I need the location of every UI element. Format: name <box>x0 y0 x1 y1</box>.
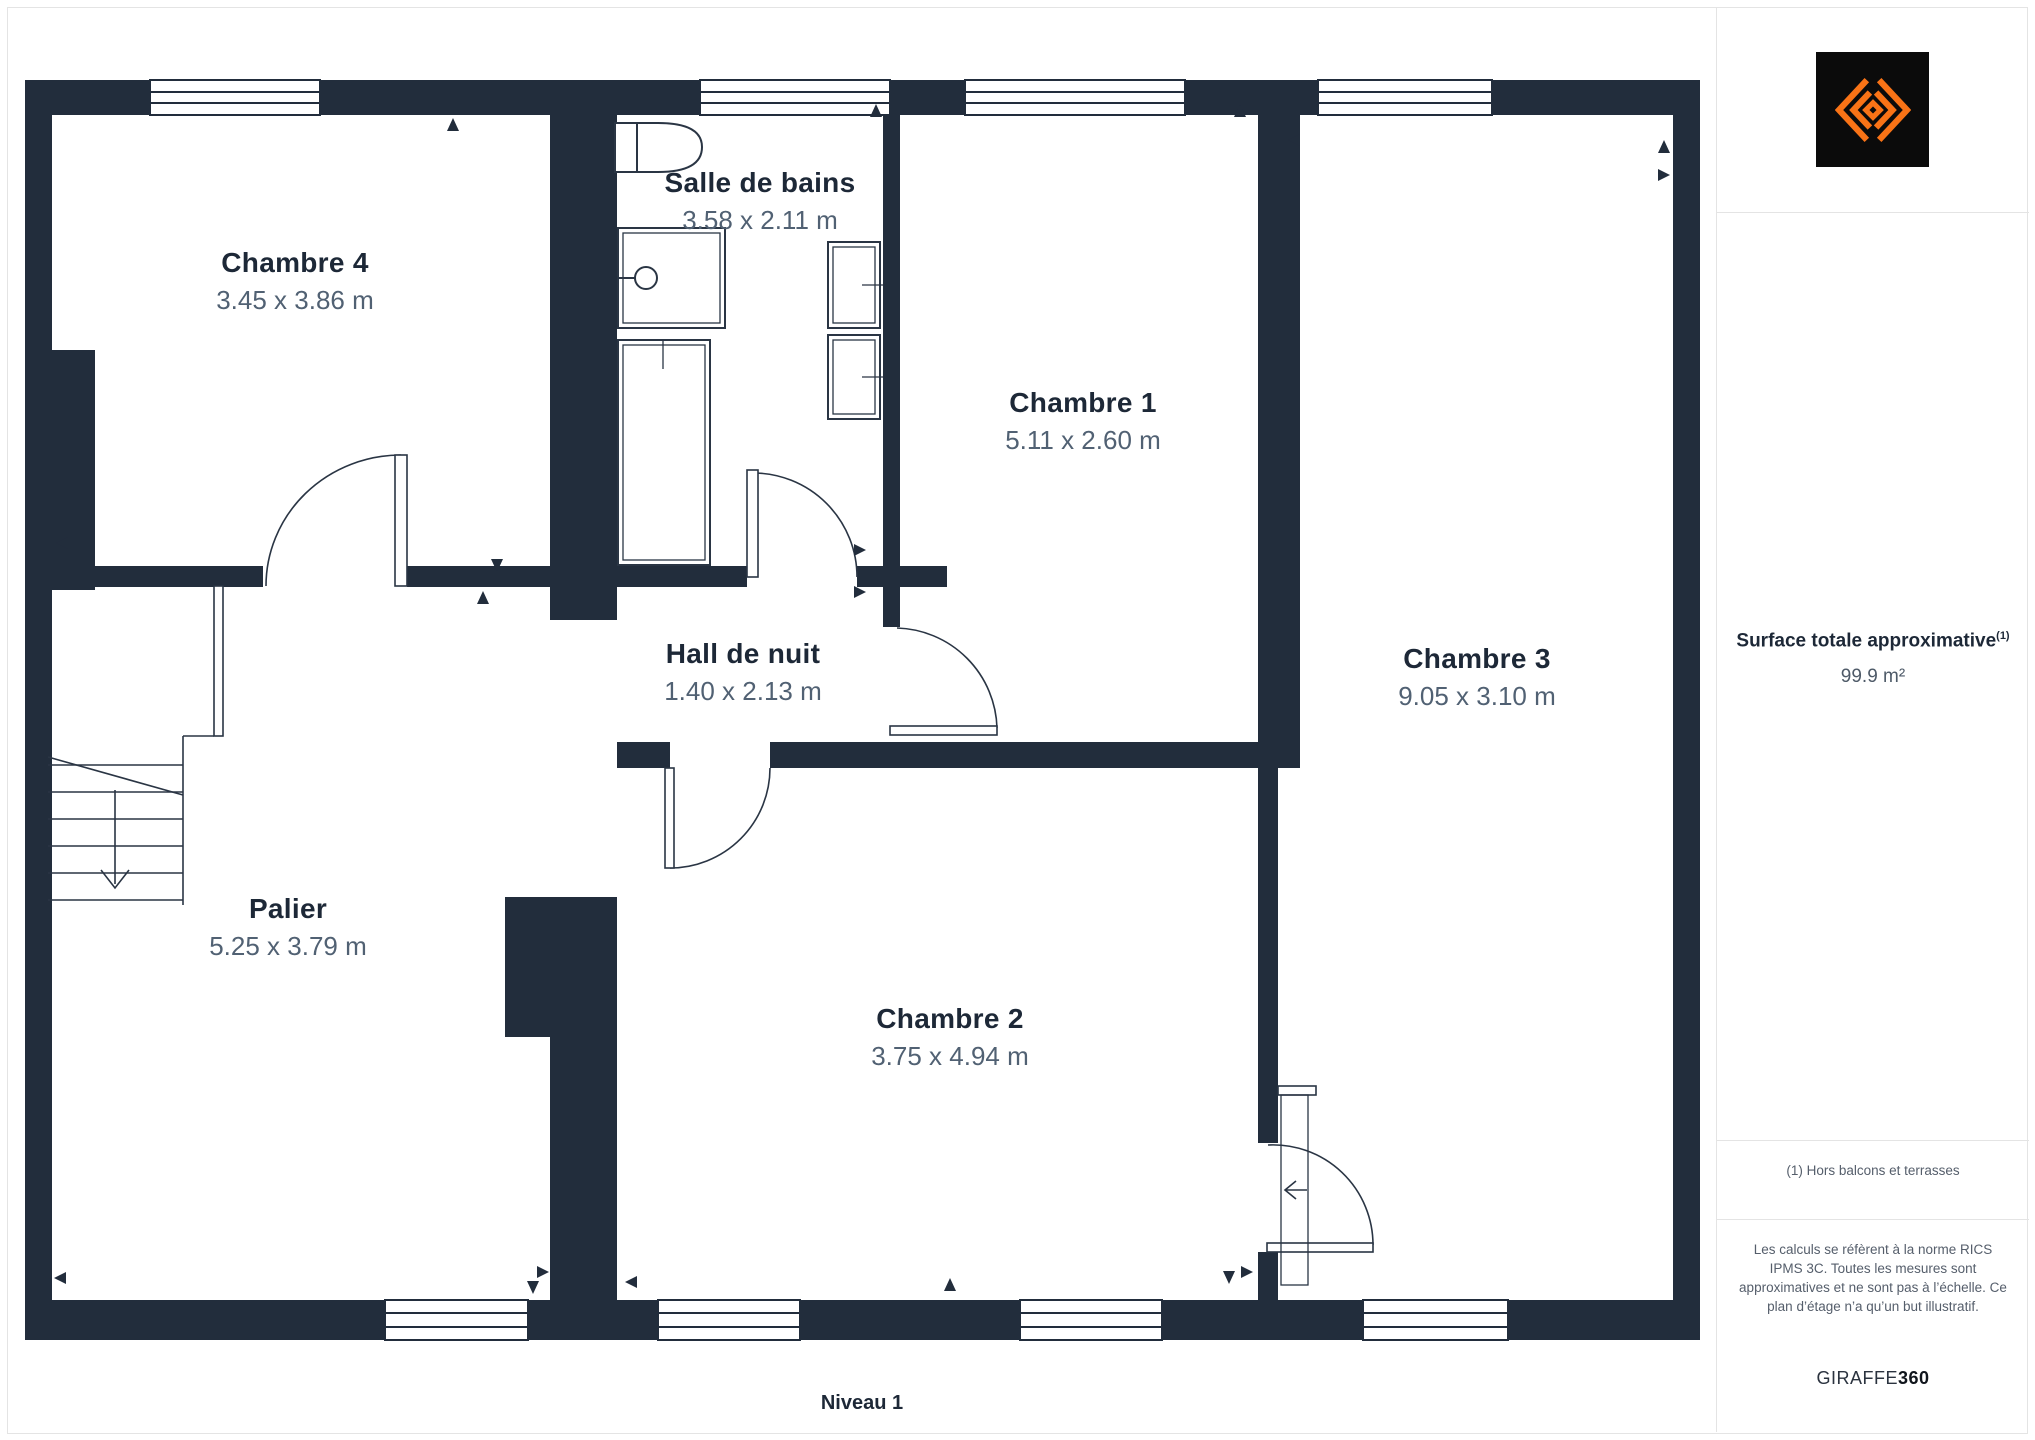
brand-logo <box>1816 52 1929 167</box>
door-chambre2 <box>665 768 770 868</box>
wall-chambre1-chambre3 <box>1258 115 1300 742</box>
door-chambre3 <box>1267 1086 1373 1285</box>
arrow-left-icon <box>54 1272 66 1284</box>
wall-hall-bottom-b <box>770 742 1300 768</box>
arrow-down-icon <box>1223 1271 1235 1284</box>
door-bathroom <box>747 470 857 577</box>
wall-palier-top-c <box>857 566 947 587</box>
brand-number: 360 <box>1898 1368 1930 1388</box>
wall-palier-chambre2 <box>550 1037 617 1300</box>
stair-railing <box>214 586 223 736</box>
window <box>658 1300 800 1340</box>
window <box>385 1300 528 1340</box>
staircase <box>48 586 223 905</box>
wall-bathroom-chambre1 <box>883 115 900 587</box>
window <box>965 80 1185 115</box>
total-surface-title: Surface totale approximative(1) <box>1717 630 2029 652</box>
arrow-up-icon <box>447 118 459 131</box>
wall-chambre2-chambre3-stub <box>1258 1252 1278 1300</box>
brand-wordmark: GIRAFFE360 <box>1717 1368 2029 1389</box>
wall-left <box>25 80 52 1340</box>
wall-chimney-block <box>505 897 617 1037</box>
window <box>1020 1300 1162 1340</box>
arrow-up-icon <box>477 591 489 604</box>
wall-palier-top-b <box>407 566 747 587</box>
wall-chambre2-chambre3 <box>1258 768 1278 1143</box>
wall-hall-stub <box>883 587 900 627</box>
window <box>1318 80 1492 115</box>
total-surface-footnote-marker: (1) <box>1996 630 2009 642</box>
toilet-icon <box>615 123 702 172</box>
door-chambre1 <box>890 628 997 735</box>
giraffe360-logo-icon <box>1835 77 1911 143</box>
sidebar-divider <box>1717 1219 2029 1220</box>
window <box>1363 1300 1508 1340</box>
wall-left-pier <box>52 350 95 590</box>
floorplan-drawing <box>0 0 1716 1440</box>
arrow-right-icon <box>1241 1266 1253 1278</box>
floorplan-page: Chambre 4 3.45 x 3.86 m Salle de bains 3… <box>0 0 2035 1440</box>
arrow-right-icon <box>854 544 866 556</box>
wall-hall-bottom-a <box>617 742 670 768</box>
info-sidebar: Surface totale approximative(1) 99.9 m² … <box>1716 8 2029 1432</box>
shower-icon <box>618 340 710 565</box>
arrow-left-icon <box>625 1276 637 1288</box>
arrow-right-icon <box>1658 169 1670 181</box>
sink-icon <box>618 228 725 328</box>
footnote-text: (1) Hors balcons et terrasses <box>1717 1163 2029 1178</box>
arrow-up-icon <box>944 1278 956 1291</box>
floor-level-label: Niveau 1 <box>762 1392 962 1415</box>
window <box>700 80 890 115</box>
arrow-right-icon <box>537 1266 549 1278</box>
sidebar-divider <box>1717 212 2029 213</box>
wall-chambre4-bathroom <box>550 115 617 620</box>
sidebar-divider <box>1717 1140 2029 1141</box>
dryer-icon <box>828 335 883 419</box>
stair-winder-line <box>48 757 183 795</box>
wall-right <box>1673 80 1700 1340</box>
door-chambre4 <box>266 455 407 586</box>
arrow-up-icon <box>1658 140 1670 153</box>
total-surface-value: 99.9 m² <box>1717 666 2029 688</box>
total-surface-title-text: Surface totale approximative <box>1736 630 1996 651</box>
brand-name: GIRAFFE <box>1816 1368 1898 1388</box>
arrow-right-icon <box>854 586 866 598</box>
arrow-down-icon <box>527 1281 539 1294</box>
disclaimer-text: Les calculs se réfèrent à la norme RICS … <box>1737 1240 2009 1316</box>
window <box>150 80 320 115</box>
washer-icon <box>828 242 883 328</box>
wall-palier-top-a <box>48 566 263 587</box>
total-surface-block: Surface totale approximative(1) 99.9 m² <box>1717 630 2029 688</box>
